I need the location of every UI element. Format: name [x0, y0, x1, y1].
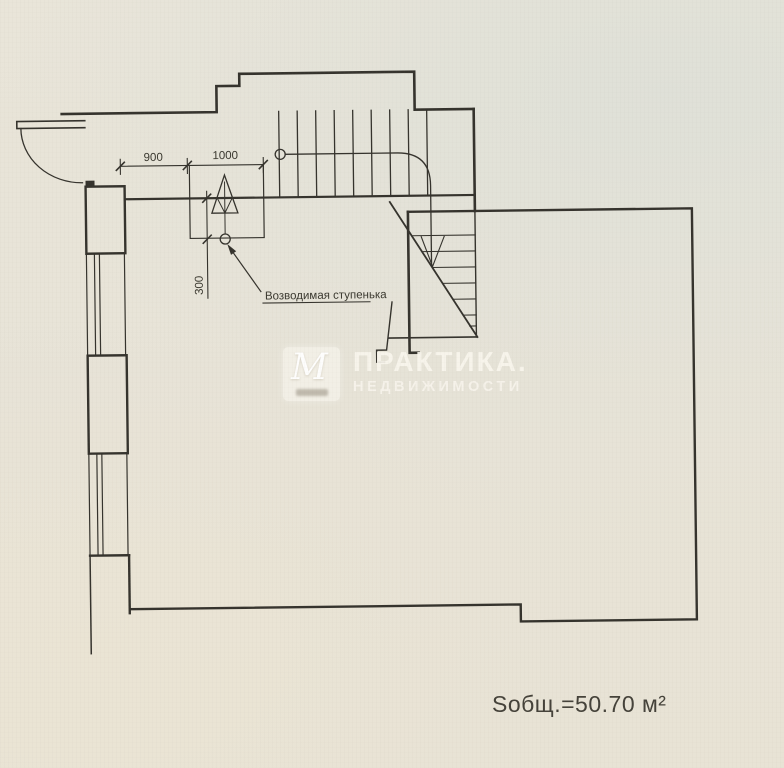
dim-label-1000: 1000: [212, 150, 238, 162]
entrance-door: [17, 121, 86, 184]
wall-break-hook: [376, 302, 393, 362]
scanned-floorplan-page: 900 1000 300 Возводимая ступенька М ПРАК…: [0, 0, 784, 768]
wall-pier: [86, 186, 126, 253]
wall-end-tail: [90, 556, 91, 654]
dimension-ticks: [116, 161, 268, 245]
new-step-outline: [189, 165, 264, 239]
stair-cut-diagonal: [390, 201, 478, 338]
stairs-lower: [375, 201, 478, 362]
dimensions: [116, 158, 269, 300]
left-wall-windows: [85, 180, 130, 653]
dim-label-900: 900: [144, 152, 163, 164]
door-leaf: [17, 121, 85, 129]
floorplan-drawing: 900 1000 300 Возводимая ступенька: [0, 0, 784, 768]
window-section: [86, 253, 125, 355]
leader-arrowhead: [227, 244, 236, 255]
door-arc: [21, 128, 83, 184]
stair-treads: [412, 235, 477, 327]
step-note-label: Возводимая ступенька: [265, 289, 387, 302]
floorplan-svg: 900 1000 300 Возводимая ступенька: [0, 0, 784, 768]
dim-label-300: 300: [194, 276, 206, 295]
leader-line: [233, 253, 260, 292]
wall-pier: [88, 355, 128, 453]
window-section: [89, 453, 128, 555]
door-jamb-tick: [85, 181, 94, 186]
stair-direction-start: [275, 149, 285, 159]
total-area-label: Sобщ.=50.70 м²: [492, 691, 666, 718]
